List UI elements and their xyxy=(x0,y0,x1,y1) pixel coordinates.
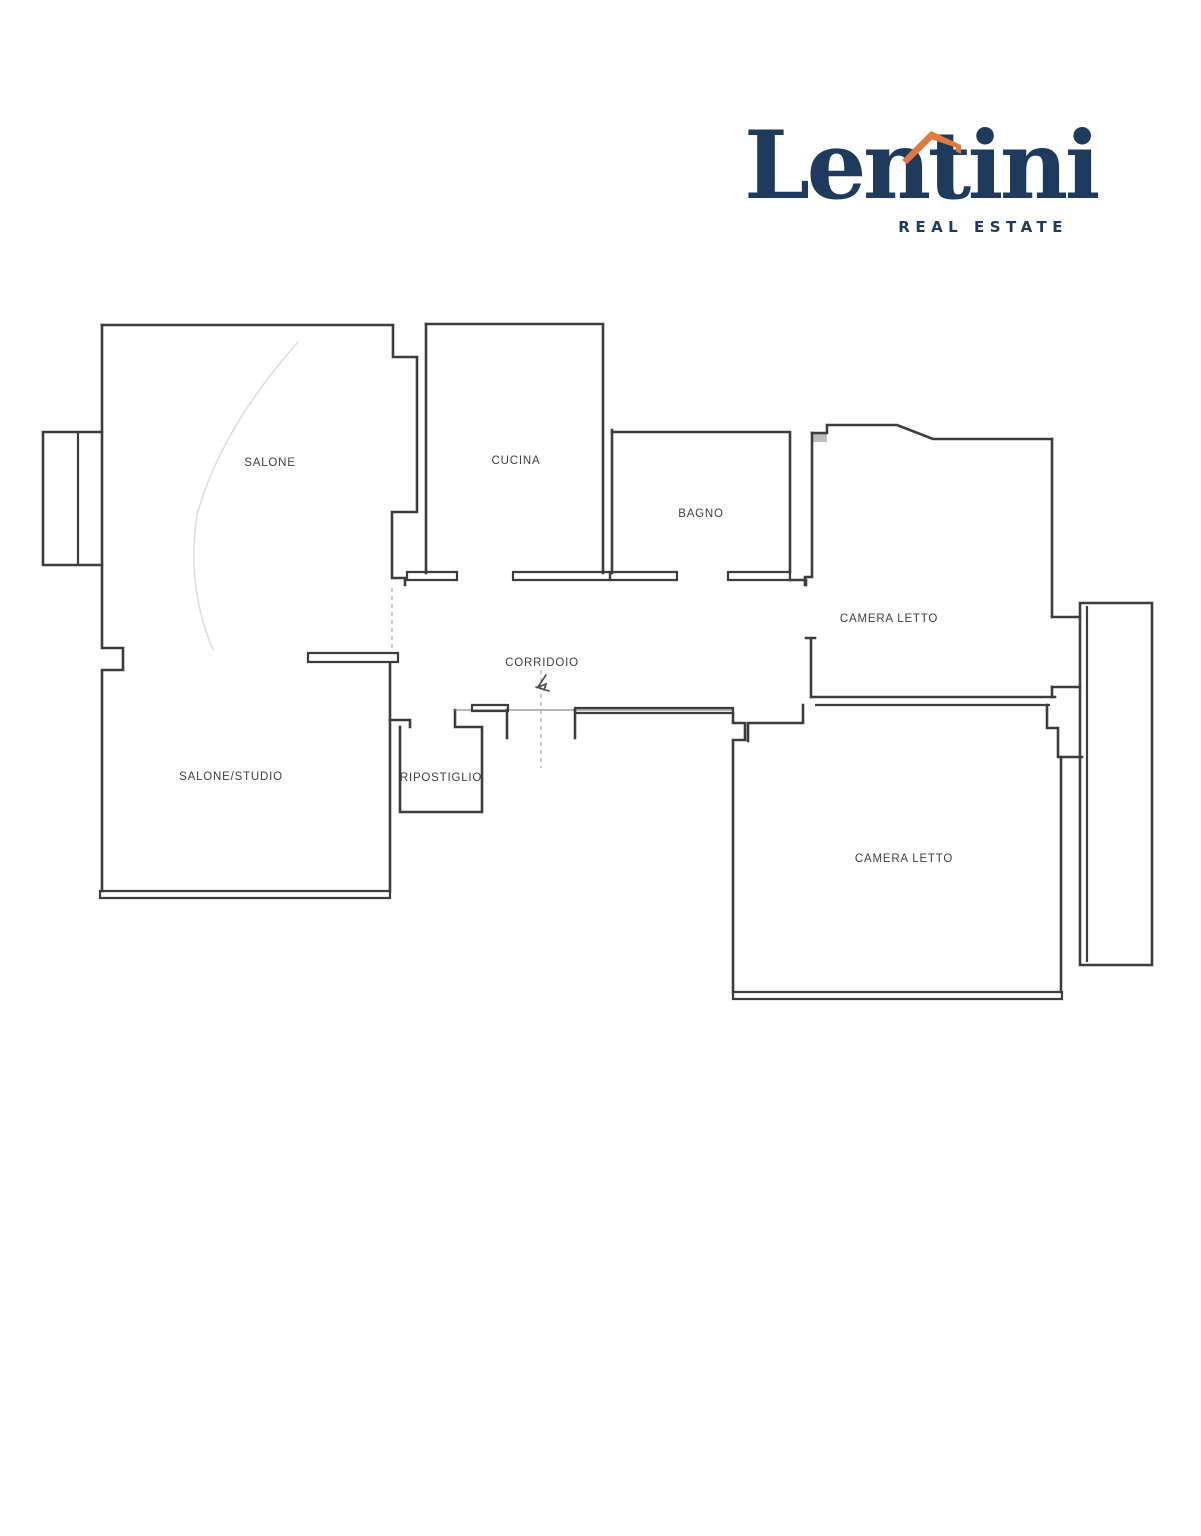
ripostiglio-walls xyxy=(400,710,482,812)
cucina-walls xyxy=(407,324,612,580)
label-camera-letto-2: CAMERA LETTO xyxy=(855,853,953,865)
entrance-mark xyxy=(536,675,549,691)
corridoio-walls xyxy=(455,670,745,768)
pencil-arc xyxy=(194,342,298,650)
label-bagno: BAGNO xyxy=(678,508,724,520)
floor-plan: SALONE CUCINA BAGNO CAMERA LETTO CORRIDO… xyxy=(0,0,1201,1536)
balcony-right xyxy=(1080,603,1152,965)
balcony-left xyxy=(43,432,102,565)
label-salone-studio: SALONE/STUDIO xyxy=(179,771,283,783)
label-corridoio: CORRIDOIO xyxy=(505,657,579,669)
label-salone: SALONE xyxy=(244,457,295,469)
salone-walls xyxy=(43,325,417,891)
camera-letto-1-walls xyxy=(805,425,1080,705)
label-camera-letto-1: CAMERA LETTO xyxy=(840,613,938,625)
camera-letto-2-walls xyxy=(733,705,1082,999)
label-ripostiglio: RIPOSTIGLIO xyxy=(400,772,482,784)
label-cucina: CUCINA xyxy=(492,455,541,467)
